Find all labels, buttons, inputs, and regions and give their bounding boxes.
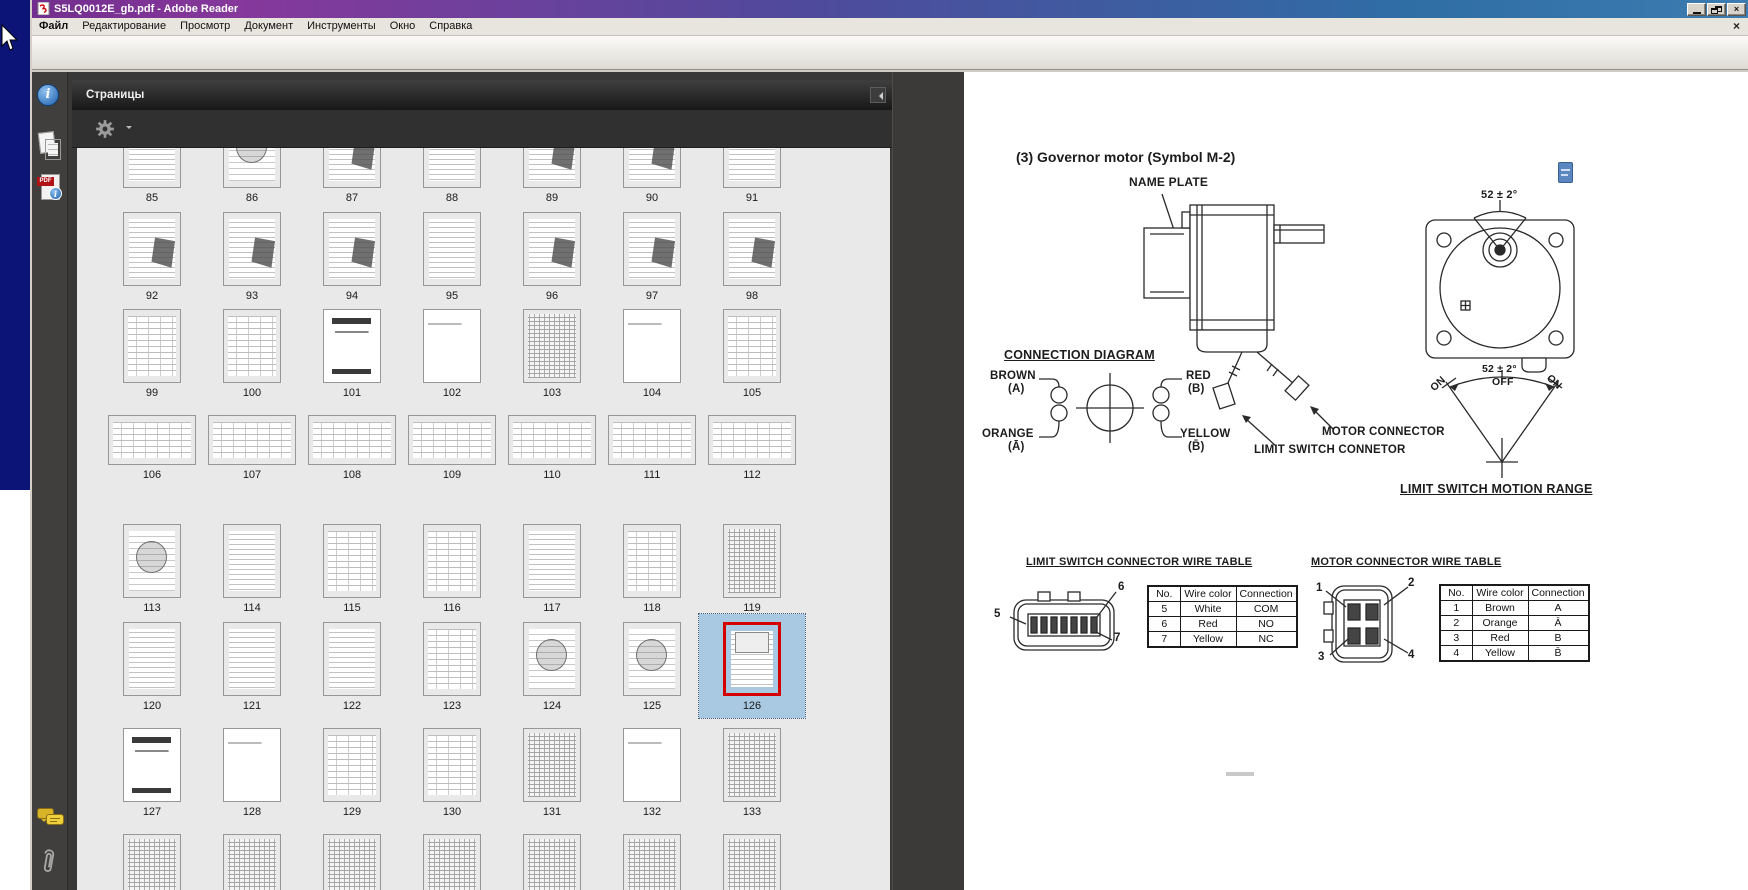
motion-range-title: LIMIT SWITCH MOTION RANGE [1400, 482, 1592, 496]
table-cell: Yellow [1180, 632, 1236, 648]
motor-connector-wire-table: No.Wire colorConnection1BrownA2OrangeĀ3R… [1439, 584, 1590, 662]
page-thumbnail-103[interactable] [523, 309, 581, 383]
table-header: Connection [1236, 586, 1297, 602]
page-thumbnail-98[interactable] [723, 212, 781, 286]
table-cell: Yellow [1472, 646, 1528, 662]
table-cell: B̄ [1528, 646, 1589, 662]
desktop-wallpaper [0, 0, 30, 490]
page-number-label: 91 [722, 192, 782, 204]
desktop-background [0, 0, 30, 890]
table-cell: B [1528, 631, 1589, 646]
adobe-reader-window: S5LQ0012E_gb.pdf - Adobe Reader × ФайлРе… [30, 0, 1748, 890]
page-number-label: 108 [322, 469, 382, 481]
wire-label-yellow: YELLOW [1180, 428, 1230, 440]
page-footer-mark [1226, 772, 1254, 776]
table-cell: 5 [1148, 602, 1180, 617]
pages-icon[interactable] [37, 132, 63, 162]
comments-icon[interactable] [37, 806, 65, 830]
table-row: 1BrownA [1440, 601, 1589, 616]
page-heading: (3) Governor motor (Symbol M-2) [1016, 149, 1235, 165]
angle-label: 52 ± 2° [1481, 189, 1517, 201]
table-header: Wire color [1472, 585, 1528, 601]
page-number-label: 110 [522, 469, 582, 481]
page-thumbnail-96[interactable] [523, 212, 581, 286]
navigation-icon-strip: i PDF i [32, 72, 68, 890]
pdf-tag: PDF [37, 177, 54, 186]
menu-item-6[interactable]: Справка [422, 18, 479, 36]
page-number-label: 123 [422, 700, 482, 712]
wire-label-orange-sub: (Ā) [1008, 441, 1025, 453]
page-thumbnail-107[interactable] [208, 415, 296, 465]
page-thumbnail-137[interactable] [423, 834, 481, 890]
page-thumbnail-114[interactable] [223, 524, 281, 598]
motor-table-title: MOTOR CONNECTOR WIRE TABLE [1311, 556, 1501, 568]
page-number-label: 89 [522, 192, 582, 204]
page-thumbnail-92[interactable] [123, 212, 181, 286]
page-number-label: 104 [622, 387, 682, 399]
page-number-label: 93 [222, 290, 282, 302]
menu-item-4[interactable]: Инструменты [300, 18, 383, 36]
page-number-label: 94 [322, 290, 382, 302]
table-header: Wire color [1180, 586, 1236, 602]
table-cell: A [1528, 601, 1589, 616]
connection-diagram-title: CONNECTION DIAGRAM [1004, 348, 1155, 362]
page-thumbnail-109[interactable] [408, 415, 496, 465]
page-thumbnail-139[interactable] [623, 834, 681, 890]
toolbar: / 1030 − + [32, 36, 1748, 70]
limit-switch-connector-label: LIMIT SWITCH CONNETOR [1254, 444, 1406, 456]
page-thumbnail-133[interactable] [723, 728, 781, 802]
page-number-label: 133 [722, 806, 782, 818]
page-thumbnail-112[interactable] [708, 415, 796, 465]
page-number-label: 118 [622, 602, 682, 614]
info-badge: i [49, 187, 62, 200]
page-number-label: 129 [322, 806, 382, 818]
page-number-label: 107 [222, 469, 282, 481]
table-cell: Red [1180, 617, 1236, 632]
info-icon[interactable]: i [37, 84, 59, 106]
page-number-label: 131 [522, 806, 582, 818]
wire-label-brown-sub: (A) [1008, 383, 1025, 395]
page-thumbnail-89[interactable] [523, 148, 581, 188]
page-thumbnail-119[interactable] [723, 524, 781, 598]
page-thumbnail-87[interactable] [323, 148, 381, 188]
page-number-label: 119 [722, 602, 782, 614]
page-sheet [45, 139, 61, 160]
speech-bubble [46, 814, 64, 825]
table-row: 3RedB [1440, 631, 1589, 646]
table-row: 7YellowNC [1148, 632, 1297, 648]
page-thumbnail-91[interactable] [723, 148, 781, 188]
table-cell: 7 [1148, 632, 1180, 648]
menu-item-3[interactable]: Документ [237, 18, 300, 36]
page-thumbnail-124[interactable] [523, 622, 581, 696]
page-thumbnail-123[interactable] [423, 622, 481, 696]
name-plate-label: NAME PLATE [1129, 175, 1208, 189]
page-number-label: 115 [322, 602, 382, 614]
page-thumbnail-85[interactable] [123, 148, 181, 188]
table-cell: Red [1472, 631, 1528, 646]
minimize-button[interactable] [1687, 3, 1706, 16]
page-thumbnail-115[interactable] [323, 524, 381, 598]
window-title: S5LQ0012E_gb.pdf - Adobe Reader [54, 0, 238, 18]
page-number-label: 100 [222, 387, 282, 399]
table-row: 4YellowB̄ [1440, 646, 1589, 662]
page-thumbnail-125[interactable] [623, 622, 681, 696]
table-cell: NO [1236, 617, 1297, 632]
page-thumbnail-126[interactable] [723, 622, 781, 696]
page-thumbnail-135[interactable] [223, 834, 281, 890]
pin-label: 2 [1408, 577, 1415, 589]
comment-note-icon[interactable] [1558, 162, 1573, 183]
page-number-label: 113 [122, 602, 182, 614]
page-thumbnail-99[interactable] [123, 309, 181, 383]
page-thumbnail-94[interactable] [323, 212, 381, 286]
menu-item-5[interactable]: Окно [383, 18, 423, 36]
page-thumbnail-97[interactable] [623, 212, 681, 286]
page-thumbnail-113[interactable] [123, 524, 181, 598]
page-number-label: 102 [422, 387, 482, 399]
menu-item-2[interactable]: Просмотр [173, 18, 237, 36]
page-number-label: 96 [522, 290, 582, 302]
wire-label-red-sub: (B) [1188, 383, 1205, 395]
page-number-label: 130 [422, 806, 482, 818]
page-thumbnail-131[interactable] [523, 728, 581, 802]
table-cell: Orange [1472, 616, 1528, 631]
page-thumbnail-128[interactable] [223, 728, 281, 802]
page-number-label: 101 [322, 387, 382, 399]
attachments-paperclip-icon[interactable] [35, 844, 62, 877]
pin-label: 6 [1118, 581, 1125, 593]
page-number-label: 120 [122, 700, 182, 712]
page-number-label: 112 [722, 469, 782, 481]
table-cell: White [1180, 602, 1236, 617]
pin-label: 7 [1114, 632, 1121, 644]
page-number-label: 103 [522, 387, 582, 399]
limit-table-title: LIMIT SWITCH CONNECTOR WIRE TABLE [1026, 556, 1252, 568]
page-number-label: 122 [322, 700, 382, 712]
menu-item-1[interactable]: Редактирование [75, 18, 173, 36]
page-number-label: 117 [522, 602, 582, 614]
page-thumbnail-88[interactable] [423, 148, 481, 188]
page-thumbnail-122[interactable] [323, 622, 381, 696]
page-thumbnail-105[interactable] [723, 309, 781, 383]
page-number-label: 114 [222, 602, 282, 614]
page-thumbnail-117[interactable] [523, 524, 581, 598]
page-thumbnail-130[interactable] [423, 728, 481, 802]
page-thumbnail-121[interactable] [223, 622, 281, 696]
page-number-label: 87 [322, 192, 382, 204]
wire-label-orange: ORANGE [982, 428, 1034, 440]
page-thumbnail-110[interactable] [508, 415, 596, 465]
table-cell: 4 [1440, 646, 1472, 662]
motion-off-label: OFF [1492, 376, 1514, 388]
page-number-label: 127 [122, 806, 182, 818]
panel-options-bar [72, 110, 892, 148]
motor-connector-label: MOTOR CONNECTOR [1322, 426, 1445, 438]
page-number-label: 95 [422, 290, 482, 302]
page-number-label: 85 [122, 192, 182, 204]
page-thumbnail-95[interactable] [423, 212, 481, 286]
page-number-label: 97 [622, 290, 682, 302]
mouse-cursor [1, 24, 19, 52]
panel-splitter[interactable] [892, 72, 964, 890]
options-dropdown-icon[interactable] [126, 126, 132, 132]
menu-item-0[interactable]: Файл [32, 18, 75, 36]
document-pane[interactable]: (3) Governor motor (Symbol M-2) NAME PLA… [964, 72, 1748, 890]
wire-label-brown: BROWN [990, 370, 1036, 382]
pin-label: 4 [1408, 649, 1415, 661]
page-thumbnail-111[interactable] [608, 415, 696, 465]
page-number-label: 132 [622, 806, 682, 818]
page-number-label: 98 [722, 290, 782, 302]
table-cell: NC [1236, 632, 1297, 648]
page-thumbnail-136[interactable] [323, 834, 381, 890]
panel-title: Страницы [86, 89, 144, 101]
close-button[interactable]: × [1727, 3, 1746, 16]
title-bar[interactable]: S5LQ0012E_gb.pdf - Adobe Reader × [32, 0, 1748, 18]
page-thumbnail-116[interactable] [423, 524, 481, 598]
page-number-label: 92 [122, 290, 182, 302]
page-number-label: 88 [422, 192, 482, 204]
table-row: 6RedNO [1148, 617, 1297, 632]
collapse-panel-icon[interactable] [870, 87, 886, 103]
table-cell: COM [1236, 602, 1297, 617]
page-number-label: 125 [622, 700, 682, 712]
table-header: No. [1148, 586, 1180, 602]
page-thumbnail-106[interactable] [108, 415, 196, 465]
page-thumbnail-138[interactable] [523, 834, 581, 890]
page-thumbnail-86[interactable] [223, 148, 281, 188]
page-thumbnail-132[interactable] [623, 728, 681, 802]
page-number-label: 99 [122, 387, 182, 399]
page-number-label: 111 [622, 469, 682, 481]
table-cell: 6 [1148, 617, 1180, 632]
pin-label: 3 [1318, 651, 1325, 663]
motion-angle-label: 52 ± 2° [1482, 363, 1517, 375]
limit-switch-wire-table: No.Wire colorConnection5WhiteCOM6RedNO7Y… [1147, 585, 1298, 648]
page-thumbnail-140[interactable] [723, 834, 781, 890]
page-number-label: 86 [222, 192, 282, 204]
wire-label-red: RED [1186, 370, 1211, 382]
page-number-label: 106 [122, 469, 182, 481]
page-thumbnail-129[interactable] [323, 728, 381, 802]
pin-label: 1 [1316, 582, 1323, 594]
page-thumbnail-118[interactable] [623, 524, 681, 598]
page-number-label: 105 [722, 387, 782, 399]
pin-label: 5 [994, 608, 1001, 620]
page-thumbnail-127[interactable] [123, 728, 181, 802]
page-number-label: 124 [522, 700, 582, 712]
page-line-art [964, 72, 1748, 890]
close-document-icon[interactable]: × [1733, 20, 1740, 32]
wire-label-yellow-sub: (B̄) [1188, 441, 1205, 453]
pdf-file-icon [37, 2, 50, 15]
pages-panel: Страницы 8586878889909192939495969798991… [68, 72, 892, 890]
table-cell: Brown [1472, 601, 1528, 616]
menu-bar: ФайлРедактированиеПросмотрДокументИнстру… [32, 18, 1748, 36]
table-header: Connection [1528, 585, 1589, 601]
page-number-label: 126 [722, 700, 782, 712]
page-thumbnail-108[interactable] [308, 415, 396, 465]
table-cell: 2 [1440, 616, 1472, 631]
page-number-label: 90 [622, 192, 682, 204]
page-number-label: 109 [422, 469, 482, 481]
page-thumbnail-134[interactable] [123, 834, 181, 890]
options-gear-icon[interactable] [88, 119, 122, 139]
page-thumbnail-120[interactable] [123, 622, 181, 696]
restore-button[interactable] [1707, 3, 1726, 16]
page-thumbnail-100[interactable] [223, 309, 281, 383]
page-thumbnail-102[interactable] [423, 309, 481, 383]
pdf-info-icon[interactable]: PDF i [37, 172, 65, 206]
panel-header: Страницы [72, 80, 892, 110]
page-number-label: 121 [222, 700, 282, 712]
table-cell: 3 [1440, 631, 1472, 646]
table-row: 2OrangeĀ [1440, 616, 1589, 631]
table-row: 5WhiteCOM [1148, 602, 1297, 617]
page-number-label: 128 [222, 806, 282, 818]
table-header: No. [1440, 585, 1472, 601]
page-number-label: 116 [422, 602, 482, 614]
page-thumbnail-90[interactable] [623, 148, 681, 188]
desktop-lower [0, 490, 30, 890]
page-thumbnail-101[interactable] [323, 309, 381, 383]
page-thumbnail-104[interactable] [623, 309, 681, 383]
thumbnail-grid: 8586878889909192939495969798991001011021… [77, 148, 890, 890]
page-thumbnail-93[interactable] [223, 212, 281, 286]
table-cell: Ā [1528, 616, 1589, 631]
table-cell: 1 [1440, 601, 1472, 616]
